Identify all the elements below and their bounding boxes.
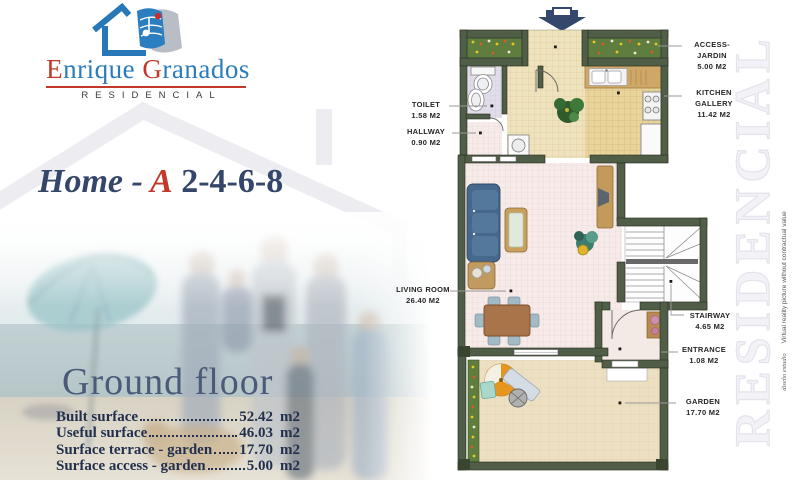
surface-unit: m2 bbox=[280, 425, 300, 442]
room-name: TOILET bbox=[402, 99, 450, 110]
brochure-page: RESIDENCIAL bbox=[0, 0, 800, 480]
room-area: 5.00 M2 bbox=[682, 61, 742, 72]
room-area: 1.58 M2 bbox=[402, 110, 450, 121]
room-area: 11.42 M2 bbox=[678, 109, 750, 120]
room-name: STAIRWAY bbox=[684, 310, 736, 321]
room-name: ENTRANCE bbox=[679, 344, 729, 355]
title-prefix: Home - bbox=[38, 163, 150, 200]
coffee-table bbox=[505, 208, 527, 252]
surface-label: Surface access - garden bbox=[56, 458, 206, 475]
label-living-room: LIVING ROOM 26.40 M2 bbox=[394, 284, 452, 306]
side-table bbox=[468, 262, 495, 289]
dot-leader bbox=[214, 452, 237, 454]
access-path-floor bbox=[528, 30, 582, 72]
kitchen-counter bbox=[585, 66, 661, 88]
label-entrance: ENTRANCE 1.08 M2 bbox=[679, 344, 729, 366]
brand-rest-1: nrique bbox=[63, 54, 142, 84]
surface-table: Built surface 52.42 m2 Useful surface 46… bbox=[56, 409, 300, 475]
sofa bbox=[467, 184, 500, 262]
music-sheet bbox=[137, 8, 165, 48]
surface-row-access: Surface access - garden 5.00 m2 bbox=[56, 458, 300, 474]
surface-unit: m2 bbox=[280, 442, 300, 459]
brand-initial-g: G bbox=[142, 54, 162, 84]
tv-unit bbox=[597, 166, 613, 228]
surface-row-built: Built surface 52.42 m2 bbox=[56, 409, 300, 425]
label-hallway: HALLWAY 0.90 M2 bbox=[399, 126, 453, 148]
surface-row-terrace: Surface terrace - garden 17.70 m2 bbox=[56, 442, 300, 458]
title-numbers: 2-4-6-8 bbox=[173, 163, 283, 200]
room-name: HALLWAY bbox=[399, 126, 453, 137]
label-toilet: TOILET 1.58 M2 bbox=[402, 99, 450, 121]
porch-step bbox=[607, 368, 647, 381]
room-name: GARDEN bbox=[677, 396, 729, 407]
surface-value: 46.03 bbox=[239, 425, 273, 442]
room-name: LIVING ROOM bbox=[394, 284, 452, 295]
disclaimer-text: Virtual reality picture without contract… bbox=[781, 211, 788, 343]
room-area: 1.08 M2 bbox=[679, 355, 729, 366]
surface-value: 17.70 bbox=[239, 442, 273, 459]
designer-signature: diseño estudio bbox=[781, 353, 788, 390]
title-variant-letter: A bbox=[150, 163, 173, 200]
hall-alcove-floor bbox=[466, 122, 502, 158]
garden-cushion bbox=[480, 381, 496, 399]
surface-unit: m2 bbox=[280, 409, 300, 426]
surface-unit: m2 bbox=[280, 458, 300, 475]
garden-flower-strip bbox=[468, 360, 479, 462]
dot-leader bbox=[149, 435, 237, 437]
room-area: 4.65 M2 bbox=[684, 321, 736, 332]
surface-value: 5.00 bbox=[247, 458, 273, 475]
brand-underline bbox=[46, 86, 246, 88]
disclaimer-note: diseño estudioVirtual reality picture wi… bbox=[781, 134, 793, 468]
room-name: ACCESS-JARDIN bbox=[682, 39, 742, 61]
ground-floor-heading: Ground floor bbox=[62, 360, 273, 404]
surface-label: Built surface bbox=[56, 409, 138, 426]
dot-leader bbox=[208, 468, 245, 470]
toilet-sink bbox=[468, 89, 484, 111]
room-name: KITCHEN GALLERY bbox=[678, 87, 750, 109]
kitchen-stove bbox=[643, 92, 661, 120]
surface-label: Useful surface bbox=[56, 425, 147, 442]
washing-machine bbox=[508, 135, 529, 156]
label-stairway: STAIRWAY 4.65 M2 bbox=[684, 310, 736, 332]
brand-subtitle: RESIDENCIAL bbox=[10, 90, 286, 101]
stair-handrail bbox=[626, 259, 698, 264]
room-area: 26.40 M2 bbox=[394, 295, 452, 306]
room-area: 0.90 M2 bbox=[399, 137, 453, 148]
kitchen-cabinet bbox=[641, 124, 661, 158]
room-area: 17.70 M2 bbox=[677, 407, 729, 418]
brand-house-music-icon bbox=[90, 2, 202, 58]
brand-rest-2: ranados bbox=[162, 54, 249, 84]
label-kitchen-gallery: KITCHEN GALLERY 11.42 M2 bbox=[678, 87, 750, 120]
label-garden: GARDEN 17.70 M2 bbox=[677, 396, 729, 418]
dot-leader bbox=[140, 419, 237, 421]
label-access-jardin: ACCESS-JARDIN 5.00 M2 bbox=[682, 39, 742, 72]
surface-row-useful: Useful surface 46.03 m2 bbox=[56, 425, 300, 441]
brand-initial-e: E bbox=[46, 54, 63, 84]
page-title: Home - A 2-4-6-8 bbox=[38, 163, 338, 201]
brand-name: Enrique Granados bbox=[10, 54, 286, 85]
surface-label: Surface terrace - garden bbox=[56, 442, 212, 459]
surface-value: 52.42 bbox=[239, 409, 273, 426]
